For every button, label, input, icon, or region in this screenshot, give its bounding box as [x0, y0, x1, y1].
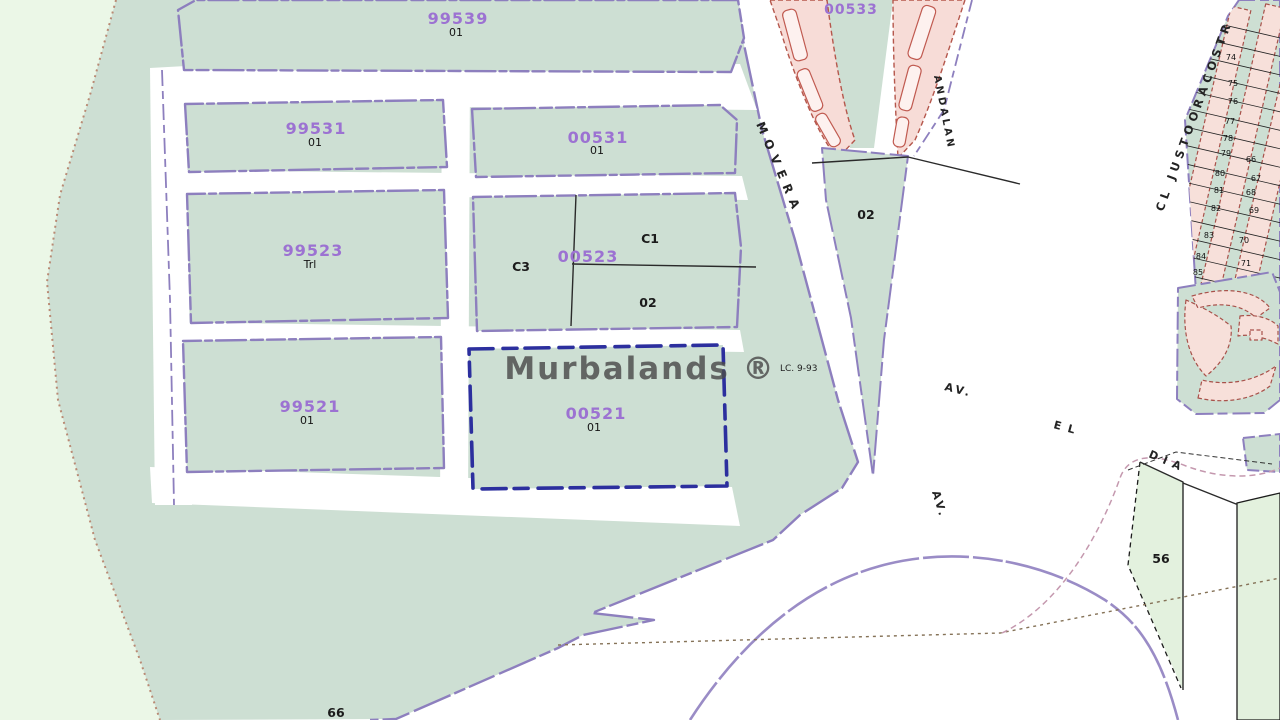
grid-parcel-number: 78: [1223, 134, 1233, 143]
parcel-id-00533: 00533: [824, 2, 878, 18]
grid-parcel-number: 66: [1246, 155, 1256, 164]
grid-parcel-number: 69: [1249, 206, 1259, 215]
street-name-andalan: ANDALAN: [931, 74, 956, 150]
grid-parcel-number: 71: [1241, 259, 1251, 268]
subparcel-02: 02: [639, 295, 656, 310]
cadastral-map-viewport: 74757677787980818283848566676869707172 9…: [0, 0, 1280, 720]
parcel-sub-99539: 01: [449, 26, 463, 39]
grid-parcel-number: 81: [1214, 186, 1224, 195]
lc-annotation: LC. 9-93: [780, 364, 817, 374]
parcel-sub-99521: 01: [300, 414, 314, 427]
grid-parcel-number: 67: [1251, 174, 1261, 183]
street-name-av-upper: AV.: [943, 380, 973, 399]
grid-parcel-number: 76: [1228, 97, 1238, 106]
ring-road-arc: [690, 556, 1178, 720]
parcel-sub-00531: 01: [590, 144, 604, 157]
street-name-av-lower: AV.: [929, 489, 950, 520]
parcel-id-00523: 00523: [558, 247, 619, 266]
street-name-el: EL: [1052, 418, 1083, 438]
parcel-66-label: 66: [327, 705, 345, 720]
parcel-56-label: 56: [1152, 551, 1170, 566]
grid-parcel-number: 70: [1239, 236, 1249, 245]
parcel-sub-99523: Trl: [303, 258, 317, 271]
watermark: Murbalands ®: [504, 351, 775, 387]
grid-parcel-number: 75: [1228, 79, 1238, 88]
grid-parcel-number: 79: [1221, 149, 1231, 158]
grid-parcel-number: 74: [1226, 53, 1236, 62]
wedge-02-label: 02: [857, 207, 874, 222]
cadastral-map: 74757677787980818283848566676869707172 9…: [0, 0, 1280, 720]
grid-parcel-number: 85: [1193, 268, 1203, 277]
parcel-bottom-right[interactable]: [1237, 493, 1280, 720]
grid-parcel-number: 77: [1225, 117, 1235, 126]
grid-parcel-number: 68: [1246, 188, 1256, 197]
parcel-sub-00521: 01: [587, 421, 601, 434]
subparcel-c3: C3: [512, 259, 530, 274]
subparcel-c1: C1: [641, 231, 659, 246]
grid-parcel-number: 80: [1215, 169, 1225, 178]
grid-parcel-number: 83: [1204, 231, 1214, 240]
small-parcel-right-edge[interactable]: [1243, 434, 1280, 472]
grid-parcel-number: 84: [1196, 252, 1206, 261]
grid-parcel-number: 82: [1211, 204, 1221, 213]
parcel-sub-99531: 01: [308, 136, 322, 149]
